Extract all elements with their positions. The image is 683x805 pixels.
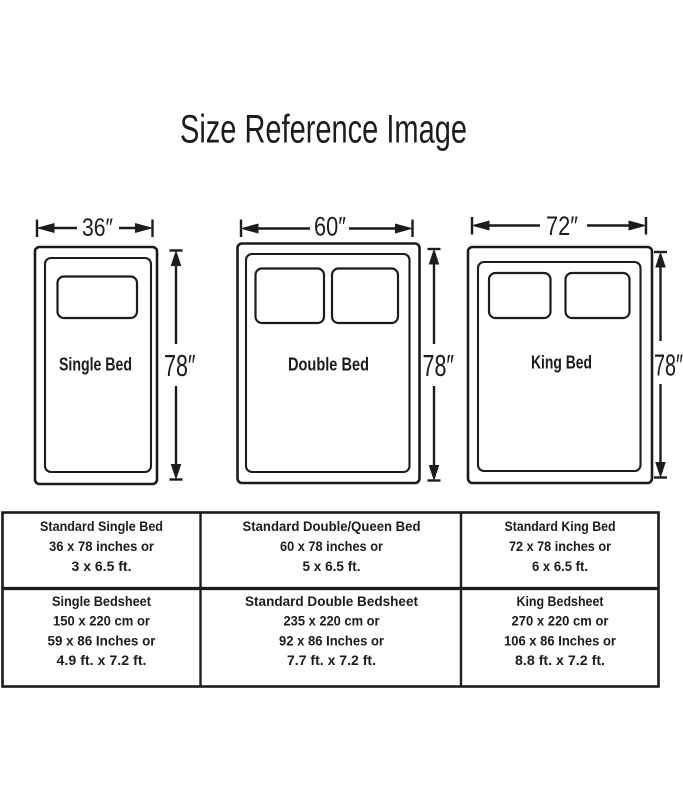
svg-text:8.8 ft. x 7.2 ft.: 8.8 ft. x 7.2 ft. bbox=[515, 652, 605, 668]
svg-text:Single Bed: Single Bed bbox=[59, 355, 132, 375]
svg-text:7.7 ft. x 7.2 ft.: 7.7 ft. x 7.2 ft. bbox=[287, 652, 376, 668]
svg-text:Standard Double/Queen Bed: Standard Double/Queen Bed bbox=[243, 518, 421, 534]
svg-text:60 x 78 inches or: 60 x 78 inches or bbox=[280, 538, 384, 554]
svg-text:King Bedsheet: King Bedsheet bbox=[517, 593, 604, 609]
svg-text:106 x 86 Inches or: 106 x 86 Inches or bbox=[504, 633, 616, 649]
svg-text:60″: 60″ bbox=[314, 212, 346, 242]
svg-text:3 x 6.5 ft.: 3 x 6.5 ft. bbox=[72, 558, 132, 574]
svg-text:150 x 220 cm or: 150 x 220 cm or bbox=[53, 613, 151, 629]
svg-text:6 x 6.5 ft.: 6 x 6.5 ft. bbox=[532, 558, 588, 574]
svg-text:36 x 78 inches or: 36 x 78 inches or bbox=[49, 538, 155, 554]
svg-text:Standard Single Bed: Standard Single Bed bbox=[40, 518, 163, 534]
svg-text:72 x 78 inches or: 72 x 78 inches or bbox=[509, 538, 611, 554]
svg-text:78″: 78″ bbox=[423, 348, 455, 383]
svg-text:Standard King Bed: Standard King Bed bbox=[505, 518, 616, 534]
svg-text:5 x 6.5 ft.: 5 x 6.5 ft. bbox=[303, 558, 361, 574]
svg-text:59 x 86 Inches or: 59 x 86 Inches or bbox=[48, 633, 157, 649]
svg-text:Double Bed: Double Bed bbox=[288, 355, 369, 375]
svg-text:72″: 72″ bbox=[546, 211, 578, 241]
svg-text:78″: 78″ bbox=[164, 348, 196, 383]
svg-text:270 x 220 cm or: 270 x 220 cm or bbox=[512, 613, 610, 629]
svg-text:Size Reference Image: Size Reference Image bbox=[180, 108, 467, 152]
svg-text:King Bed: King Bed bbox=[531, 353, 592, 373]
svg-text:Single Bedsheet: Single Bedsheet bbox=[52, 593, 151, 609]
svg-text:4.9 ft. x 7.2 ft.: 4.9 ft. x 7.2 ft. bbox=[57, 652, 147, 668]
svg-text:78″: 78″ bbox=[654, 348, 683, 383]
svg-text:Standard Double Bedsheet: Standard Double Bedsheet bbox=[245, 593, 418, 609]
svg-text:235 x 220 cm or: 235 x 220 cm or bbox=[284, 613, 381, 629]
svg-text:36″: 36″ bbox=[82, 214, 113, 242]
svg-text:92 x 86 Inches or: 92 x 86 Inches or bbox=[279, 633, 385, 649]
